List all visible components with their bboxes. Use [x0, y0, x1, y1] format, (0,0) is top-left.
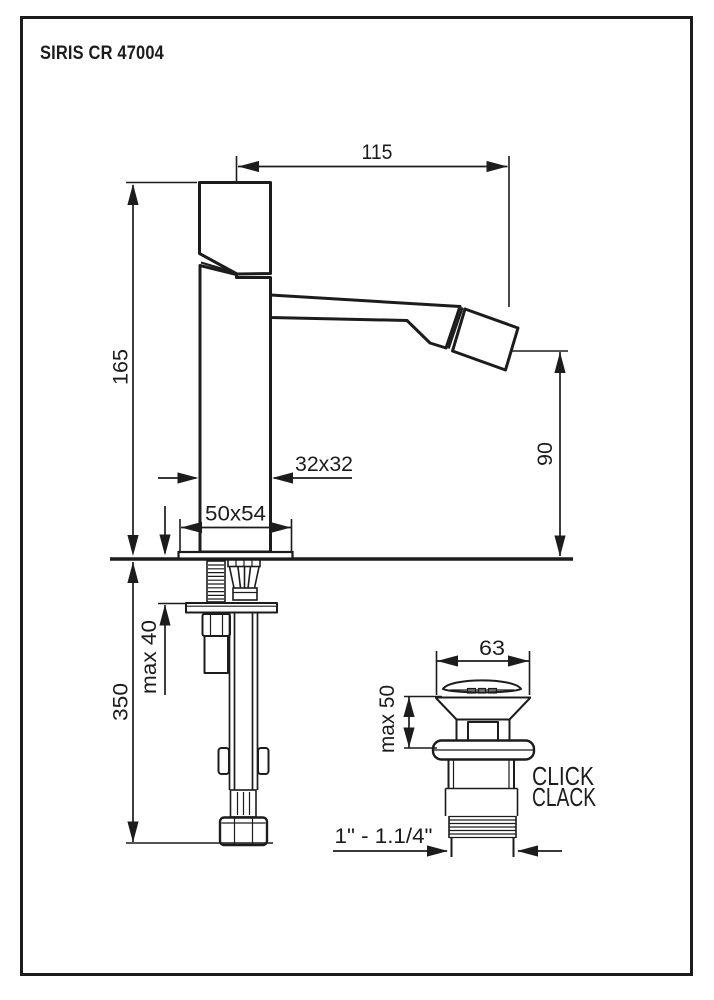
arrow-left-icon: [238, 161, 259, 172]
dim-max-deck: max 40: [138, 506, 171, 695]
dim-height-label: 165: [110, 349, 133, 385]
arrow-right-icon: [178, 472, 199, 483]
arrow-left-icon: [517, 845, 538, 856]
dim-spout-height: 90: [512, 351, 568, 557]
washer: [158, 603, 277, 613]
drain-body: [446, 760, 518, 817]
hose-tab-right: [258, 748, 269, 774]
drain-outlet: [452, 838, 514, 857]
faucet-handle: [200, 183, 271, 275]
dim-max-deck-label: max 40: [138, 620, 161, 694]
supply-hose-fittings: [228, 559, 260, 601]
dim-spout-height-label: 90: [534, 442, 557, 466]
drain-thread-section: [449, 816, 516, 838]
arrow-left-icon: [437, 655, 458, 666]
threaded-stud: [207, 561, 225, 602]
dim-drain-cap-label: 63: [479, 637, 505, 660]
arrow-up-icon: [554, 352, 565, 373]
fixing-nut: [203, 614, 231, 673]
drain-funnel: [435, 698, 531, 741]
dim-drain-thread-label: 1" - 1.1/4": [335, 825, 433, 848]
page: { "page": { "title": "SIRIS CR 47004" },…: [0, 0, 714, 1000]
arrow-right-icon: [508, 655, 529, 666]
hose-coupling: [231, 790, 257, 817]
arrow-up-icon: [403, 697, 414, 717]
arrow-down-icon: [403, 728, 414, 748]
arrow-up-icon: [159, 605, 170, 626]
dim-hose-length: 350: [110, 562, 274, 843]
dim-drain-max-label: max 50: [376, 685, 399, 753]
dim-hose-length-label: 350: [110, 683, 133, 721]
hose-tab-left: [219, 748, 230, 774]
dim-drain-cap: 63: [437, 637, 530, 695]
arrow-right-icon: [270, 522, 291, 533]
arrow-down-icon: [127, 535, 138, 556]
supply-hoses: [219, 614, 269, 846]
drain-flange: [433, 741, 534, 760]
drain-cap: [443, 680, 521, 693]
arrow-down-icon: [554, 536, 565, 557]
arrow-down-icon: [159, 535, 170, 556]
dim-spout-reach-label: 115: [362, 141, 393, 164]
aerator: [453, 309, 519, 370]
base-plate: [179, 552, 293, 559]
arrow-left-icon: [272, 472, 293, 483]
dim-spout-reach: 115: [238, 141, 509, 307]
technical-drawing: SIRIS CR 47004: [0, 0, 714, 1000]
drain-assembly: CLICK CLACK: [433, 680, 596, 857]
dim-height-above-deck: 165: [110, 183, 198, 557]
page-title: SIRIS CR 47004: [40, 43, 164, 64]
hose-end-nut: [220, 818, 267, 846]
dim-drain-thread: 1" - 1.1/4": [333, 825, 562, 857]
dim-base-plate-label: 50x54: [205, 503, 266, 526]
arrow-up-icon: [127, 562, 138, 583]
drain-type-label-2: CLACK: [532, 782, 596, 812]
dim-drain-max: max 50: [376, 685, 442, 753]
arrow-left-icon: [181, 522, 202, 533]
drain-clicker-tab: [468, 722, 498, 741]
dim-body-section-label: 32x32: [295, 453, 353, 476]
arrow-right-icon: [487, 161, 508, 172]
arrow-up-icon: [127, 184, 138, 205]
arrow-down-icon: [127, 822, 138, 843]
faucet-spout: [271, 295, 461, 348]
